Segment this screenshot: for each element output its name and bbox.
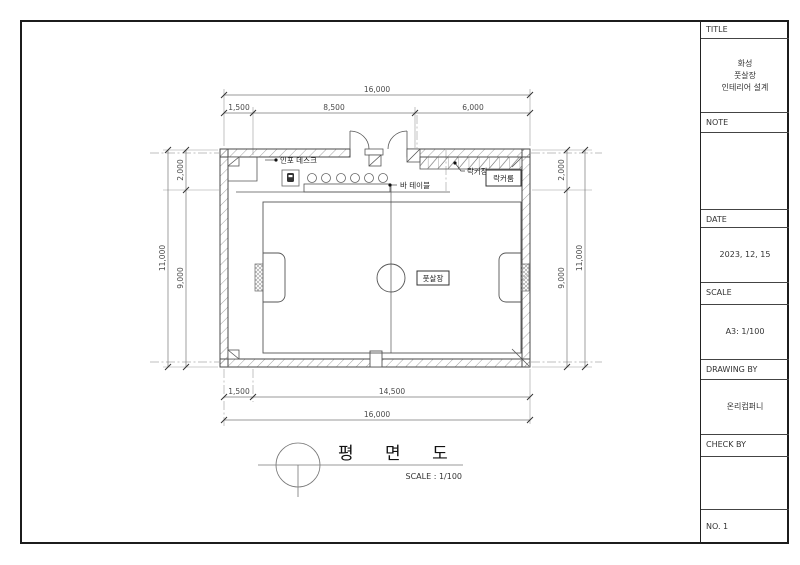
title-block-scale-value: A3: 1/100: [701, 305, 789, 360]
goals: [255, 264, 529, 291]
title-block-checkby-value: [701, 457, 789, 510]
pos-register-icon: [282, 170, 299, 186]
dim-top-seg1: 1,500: [228, 103, 250, 112]
title-block-title-value: 화성 풋살장 인테리어 설계: [701, 39, 789, 113]
dim-bottom-seg1: 1,500: [228, 387, 250, 396]
title-block-date-value: 2023, 12, 15: [701, 228, 789, 283]
dim-top-seg2: 8,500: [323, 103, 345, 112]
futsal-court: [263, 186, 521, 353]
dim-right-outer: 11,000: [575, 245, 584, 271]
title-block-scale-header: SCALE: [701, 283, 789, 305]
title-block-title-header: TITLE: [701, 20, 789, 39]
wall-right: [522, 149, 530, 367]
locker-room-tag: 락커룸: [486, 170, 521, 186]
wall-corner-details: [228, 149, 529, 366]
futsal-field-tag: 풋살장: [417, 271, 449, 285]
info-desk-label: 인포 데스크: [280, 155, 317, 165]
wall-left: [220, 149, 228, 367]
title-block: TITLE 화성 풋살장 인테리어 설계 NOTE DATE 2023, 12,…: [700, 20, 789, 544]
drawing-sheet: 인포 데스크 바 테이블 락커장 락커룸 풋살장: [0, 0, 800, 565]
walls: [220, 149, 530, 367]
entrance-double-door: [350, 131, 407, 166]
dim-top-seg3: 6,000: [462, 103, 484, 112]
bar-stools: [308, 174, 388, 183]
dim-bottom-total: 16,000: [364, 410, 390, 419]
plan-title: 평 면 도: [338, 444, 461, 464]
project-title-line: 풋살장: [722, 70, 769, 82]
title-block-no: NO. 1: [701, 510, 789, 543]
title-block-note-value: [701, 133, 789, 210]
dim-right-seg2: 9,000: [557, 267, 566, 289]
dim-right-seg1: 2,000: [557, 159, 566, 181]
locker-room-label: 락커룸: [493, 174, 514, 183]
title-block-note-header: NOTE: [701, 113, 789, 133]
futsal-field-label: 풋살장: [423, 273, 444, 283]
title-block-drawingby-header: DRAWING BY: [701, 360, 789, 380]
dim-bottom-seg2: 14,500: [379, 387, 405, 396]
locker-cabinet-label: 락커장: [467, 166, 488, 176]
dim-top-total: 16,000: [364, 85, 390, 94]
goal-left: [255, 264, 263, 291]
bar-table-label: 바 테이블: [400, 180, 430, 190]
plan-scale-note: SCALE : 1/100: [406, 472, 462, 481]
goal-right: [521, 264, 529, 291]
wall-top-right: [407, 149, 530, 157]
dim-left-outer: 11,000: [158, 245, 167, 271]
dim-left-seg1: 2,000: [176, 159, 185, 181]
dim-left-seg2: 9,000: [176, 267, 185, 289]
title-block-checkby-header: CHECK BY: [701, 435, 789, 457]
project-title-line: 화성: [722, 58, 769, 70]
title-block-date-header: DATE: [701, 210, 789, 228]
project-title-line: 인테리어 설계: [722, 82, 769, 94]
title-block-drawingby-value: 온리컴퍼니: [701, 380, 789, 435]
floor-plan-canvas: 인포 데스크 바 테이블 락커장 락커룸 풋살장: [0, 0, 800, 565]
